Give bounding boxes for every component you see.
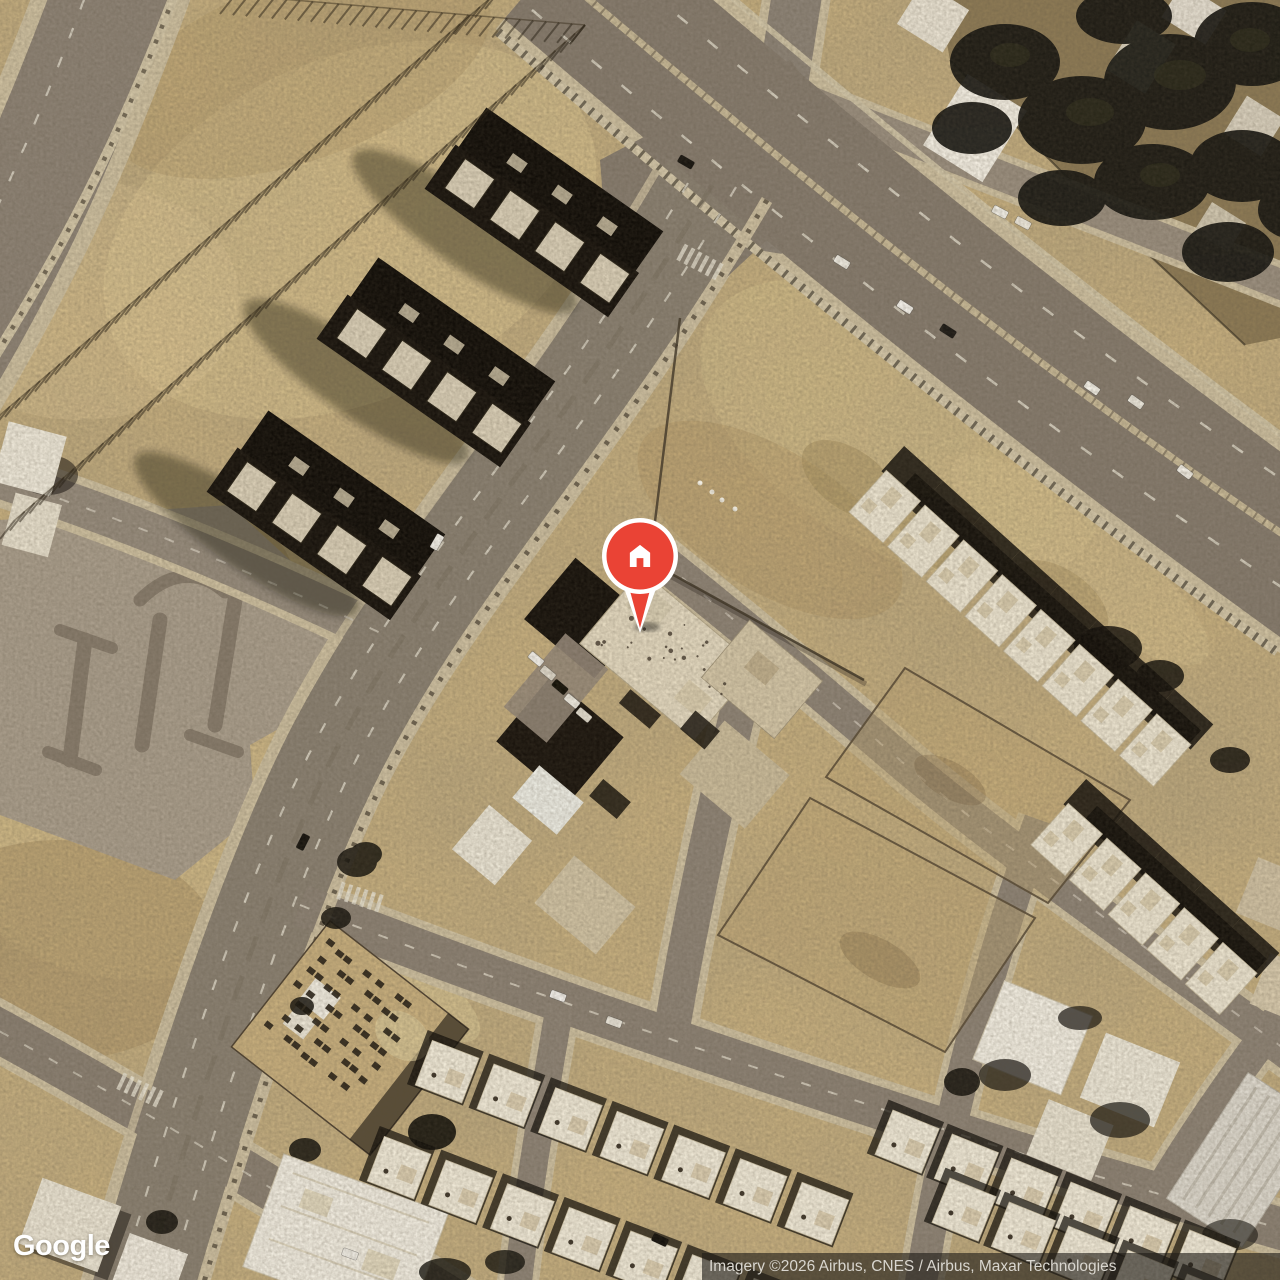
attribution-text: Imagery ©2026 Airbus, CNES / Airbus, Max… bbox=[709, 1258, 1116, 1276]
google-logo[interactable]: Google bbox=[13, 1230, 110, 1263]
film-grain bbox=[0, 0, 1280, 1280]
map-canvas[interactable]: Google Imagery ©2026 Airbus, CNES / Airb… bbox=[0, 0, 1280, 1280]
place-pin[interactable] bbox=[580, 504, 700, 636]
map-attribution: Imagery ©2026 Airbus, CNES / Airbus, Max… bbox=[702, 1253, 1280, 1280]
satellite-imagery bbox=[0, 0, 1280, 1280]
